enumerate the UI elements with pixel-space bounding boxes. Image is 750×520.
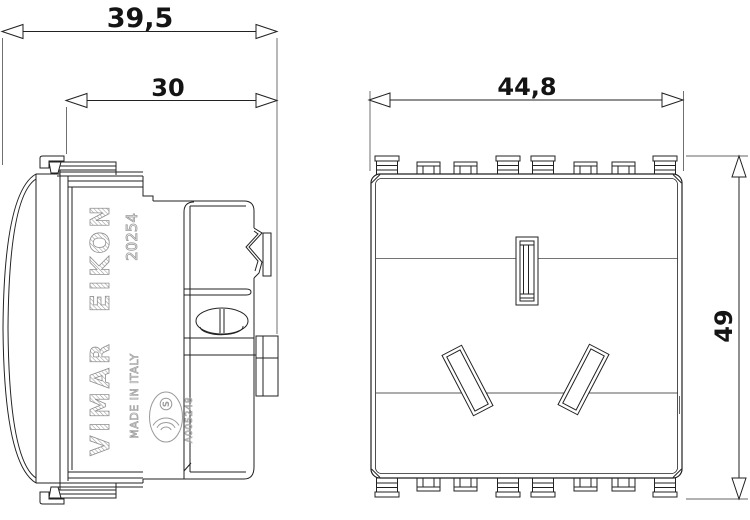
arrowhead-left-icon bbox=[66, 94, 87, 108]
mounting-tab bbox=[653, 478, 677, 497]
faceplate-profile bbox=[3, 174, 60, 483]
dim-front-height: 49 bbox=[686, 156, 748, 499]
rear-housing bbox=[143, 201, 256, 479]
mounting-tab bbox=[417, 162, 440, 175]
brand-marking: VIMAR bbox=[86, 340, 116, 456]
arrowhead-right-icon bbox=[256, 25, 277, 39]
cert-letter: S bbox=[162, 401, 172, 407]
terminal-screw bbox=[196, 308, 248, 335]
arrowhead-right-icon bbox=[256, 94, 277, 108]
dim-body-depth-label: 30 bbox=[151, 74, 184, 102]
arrowhead-down-icon bbox=[732, 478, 746, 499]
technical-drawing: 39,5 30 bbox=[0, 0, 750, 520]
terminal-block bbox=[256, 336, 278, 396]
ccc-certification-mark-icon: S bbox=[150, 392, 183, 442]
mounting-tab bbox=[612, 162, 635, 175]
arrowhead-up-icon bbox=[732, 156, 746, 177]
dim-front-height-label: 49 bbox=[710, 309, 738, 342]
mounting-tab bbox=[375, 156, 399, 175]
arrowhead-left-icon bbox=[2, 25, 23, 39]
dim-front-width: 44,8 bbox=[369, 73, 684, 171]
mounting-tab bbox=[454, 162, 477, 175]
front-plate bbox=[371, 174, 682, 478]
mounting-tab bbox=[375, 478, 399, 497]
mounting-tab bbox=[574, 162, 597, 175]
mounting-tab bbox=[653, 156, 677, 175]
dim-total-depth-label: 39,5 bbox=[107, 3, 174, 34]
mounting-tab bbox=[531, 478, 555, 497]
mounting-tab bbox=[574, 478, 597, 491]
mounting-tab bbox=[531, 156, 555, 175]
mounting-tabs-top bbox=[375, 156, 677, 175]
mounting-tabs-bottom bbox=[375, 478, 677, 497]
article-marking: 20254 bbox=[123, 213, 141, 261]
dim-front-width-label: 44,8 bbox=[497, 73, 556, 101]
approval-marking: A005248 bbox=[184, 397, 195, 443]
mounting-tab bbox=[417, 478, 440, 491]
mounting-tab bbox=[496, 156, 520, 175]
mounting-tab bbox=[454, 478, 477, 491]
spring-clip bbox=[246, 228, 271, 278]
front-view bbox=[371, 156, 682, 497]
dim-body-depth: 30 bbox=[66, 74, 277, 154]
arrowhead-left-icon bbox=[369, 93, 390, 107]
side-view: EIKON 20254 VIMAR MADE IN ITALY A005248 … bbox=[3, 156, 278, 504]
mounting-tab bbox=[612, 478, 635, 491]
series-marking: EIKON bbox=[86, 202, 116, 312]
technical-drawing-page: 39,5 30 bbox=[0, 0, 750, 520]
origin-marking: MADE IN ITALY bbox=[128, 353, 141, 438]
earth-slot bbox=[516, 237, 538, 305]
mounting-tab bbox=[496, 478, 520, 497]
arrowhead-right-icon bbox=[662, 93, 683, 107]
